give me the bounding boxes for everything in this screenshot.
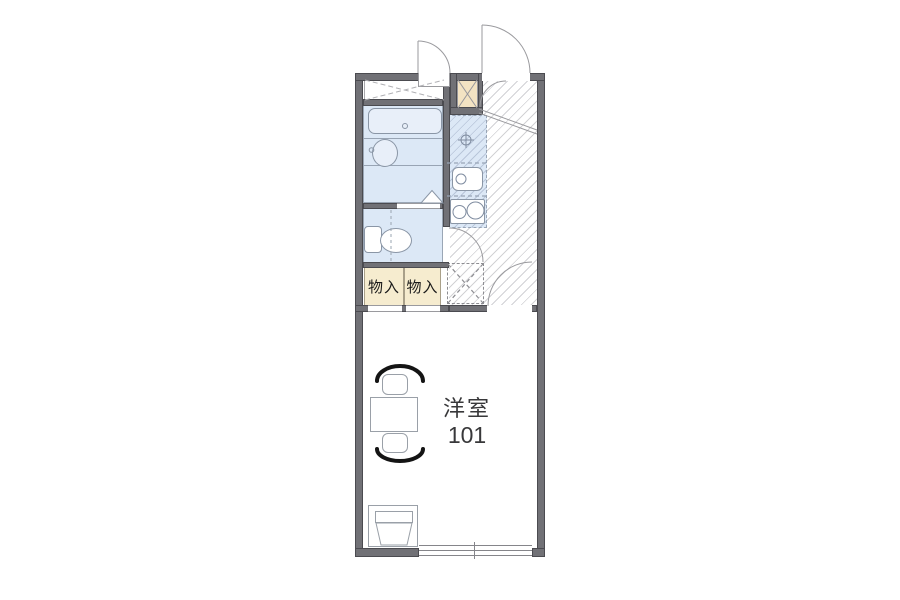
- door-recess-service: [418, 73, 450, 87]
- wall-right: [537, 73, 545, 557]
- wall-stub-kitchen-top: [450, 107, 483, 115]
- door-opening-bathroom: [397, 203, 440, 209]
- refrigerator-space: [447, 263, 484, 304]
- entrance-door-swing: [482, 25, 530, 73]
- closet-right: 物入: [404, 267, 441, 306]
- chair-seat-top: [382, 374, 408, 395]
- main-room-label: 洋室: [403, 396, 531, 422]
- wall-toilet-closet: [363, 262, 449, 268]
- door-opening-closet-left: [368, 305, 402, 312]
- bathtub: [368, 108, 442, 134]
- kitchen-sink: [452, 167, 483, 191]
- wall-bottom-right: [532, 548, 545, 557]
- stove: [450, 199, 485, 224]
- toilet-bowl: [380, 228, 412, 253]
- door-opening-closet-right: [406, 305, 440, 312]
- door-opening-entrance: [482, 73, 530, 81]
- closet-left: 物入: [364, 267, 404, 306]
- bathroom-sink: [372, 139, 398, 167]
- service-door-swing: [418, 41, 450, 73]
- washer-top: [375, 511, 413, 523]
- main-room-number: 101: [403, 422, 531, 448]
- wall-bottom-left: [355, 548, 419, 557]
- water-heater-box: [457, 79, 478, 109]
- wall-bath-top: [363, 99, 443, 106]
- main-room-title: 洋室 101: [403, 396, 531, 448]
- wall-left: [355, 73, 363, 557]
- door-opening-toilet: [443, 227, 450, 262]
- door-opening-mainroom: [487, 305, 532, 312]
- vanity-counter-line-top: [363, 138, 443, 139]
- window-middle-line: [419, 550, 532, 551]
- wall-inner-vertical: [443, 79, 450, 227]
- vanity-counter-line-bottom: [363, 165, 443, 166]
- floorplan-canvas: 物入 物入 洋室 101: [0, 0, 900, 600]
- window-tick: [474, 542, 475, 559]
